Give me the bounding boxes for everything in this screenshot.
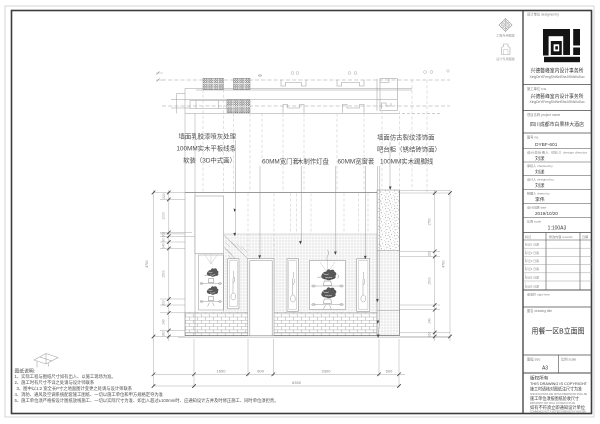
- svg-text:220: 220: [162, 193, 166, 199]
- svg-text:160: 160: [428, 332, 432, 338]
- svg-text:比例 scale: 比例 scale: [527, 218, 542, 223]
- svg-text:2019/10/20: 2019/10/20: [535, 211, 558, 216]
- svg-text:标记5 日期: 标记5 日期: [525, 274, 539, 279]
- svg-text:140: 140: [428, 318, 432, 324]
- svg-text:兴德藝峰室内设计事务所: 兴德藝峰室内设计事务所: [531, 66, 585, 74]
- svg-text:标记1 日期: 标记1 日期: [525, 242, 539, 247]
- svg-text:150: 150: [428, 251, 432, 257]
- svg-text:XingDeYiFengShiNeiSheJiShiWuSu: XingDeYiFengShiNeiSheJiShiWuSuo: [530, 100, 585, 104]
- svg-text:300: 300: [162, 232, 166, 238]
- svg-text:COMMENCE NOT A NOTED DIMENSION: COMMENCE NOT A NOTED DIMENSION F MASTER: [530, 410, 586, 413]
- svg-text:1750: 1750: [428, 218, 432, 226]
- svg-text:软装（3D中式画）: 软装（3D中式画）: [183, 156, 236, 165]
- svg-text:制图人 drawn by: 制图人 drawn by: [527, 190, 550, 195]
- svg-text:100MM实木平板线条: 100MM实木平板线条: [176, 144, 236, 153]
- svg-text:设计日期 date: 设计日期 date: [527, 204, 547, 209]
- svg-text:100MM实木踢脚线: 100MM实木踢脚线: [380, 157, 434, 166]
- svg-text:刘漾: 刘漾: [535, 168, 545, 175]
- svg-text:设计专用图章: 设计专用图章: [496, 56, 515, 61]
- svg-text:1650: 1650: [217, 368, 227, 373]
- svg-text:设计单位 designed by: 设计单位 designed by: [527, 12, 559, 17]
- svg-text:XingDeYiFengShiNeiSheJiShiWuSu: XingDeYiFengShiNeiSheJiShiWuSuo: [530, 75, 585, 79]
- svg-text:60MM宽门套: 60MM宽门套: [262, 157, 300, 166]
- svg-text:60: 60: [162, 238, 166, 242]
- svg-text:1500: 1500: [428, 277, 432, 285]
- svg-text:图号 no.: 图号 no.: [527, 134, 539, 139]
- svg-text:3、图中以1:2 宽全长P寸之地面图计变更之处请与设计师联系: 3、图中以1:2 宽全长P寸之地面图计变更之处请与设计师联系: [17, 385, 133, 392]
- svg-text:160: 160: [162, 331, 166, 337]
- svg-text:比例 scale: 比例 scale: [561, 356, 576, 361]
- svg-text:修改内容 records: 修改内容 records: [549, 234, 573, 239]
- svg-text:设计总负责人（四川）design director: 设计总负责人（四川）design director: [527, 149, 587, 154]
- svg-text:1000: 1000: [162, 212, 166, 220]
- svg-text:刘漾: 刘漾: [535, 155, 545, 162]
- svg-text:标记6 日期: 标记6 日期: [525, 284, 539, 289]
- svg-text:刘漾: 刘漾: [535, 182, 545, 189]
- svg-text:用餐一区B立面图: 用餐一区B立面图: [532, 326, 585, 335]
- svg-text:A3: A3: [542, 366, 548, 372]
- svg-text:图名 drawing title: 图名 drawing title: [527, 308, 552, 313]
- svg-text:DYBF-601: DYBF-601: [535, 142, 558, 148]
- svg-text:吧台柜（锈结砖饰面）: 吧台柜（锈结砖饰面）: [377, 145, 441, 154]
- svg-text:6350: 6350: [292, 380, 302, 385]
- svg-text:工程专用图章: 工程专用图章: [496, 32, 515, 37]
- svg-text:1500: 1500: [162, 270, 166, 278]
- svg-text:标记3 日期: 标记3 日期: [525, 258, 539, 263]
- svg-text:会签栏 sign here: 会签栏 sign here: [527, 291, 550, 296]
- svg-text:800: 800: [257, 368, 264, 373]
- svg-text:墙面乳胶漆喷灰处理: 墙面乳胶漆喷灰处理: [178, 132, 236, 141]
- svg-text:140: 140: [162, 243, 166, 249]
- svg-text:THIS DRAWING IS COPYRIGHT: THIS DRAWING IS COPYRIGHT: [530, 381, 588, 386]
- svg-text:图幅 size: 图幅 size: [527, 356, 541, 361]
- svg-text:标记: 标记: [525, 234, 531, 239]
- svg-text:设计人 designed by: 设计人 designed by: [527, 176, 554, 181]
- svg-text:300: 300: [162, 300, 166, 306]
- svg-text:3300: 3300: [322, 368, 332, 373]
- svg-text:标记4 日期: 标记4 日期: [525, 266, 539, 271]
- svg-text:600: 600: [386, 368, 393, 373]
- svg-text:5、施工单位须严格按设计图纸放线施工、一切以实际尺寸为准、如: 5、施工单位须严格按设计图纸放线施工、一切以实际尺寸为准、如出入超过±100mm…: [15, 397, 279, 404]
- svg-text:施工时请核对图纸注尺寸为准: 施工时请核对图纸注尺寸为准: [530, 386, 583, 393]
- svg-text:1:100A3: 1:100A3: [548, 226, 567, 232]
- svg-text:木制作灯盘: 木制作灯盘: [297, 157, 330, 166]
- svg-text:140: 140: [162, 319, 166, 325]
- svg-text:60MM宽窗套: 60MM宽窗套: [338, 157, 376, 166]
- svg-text:标记2 日期: 标记2 日期: [525, 250, 539, 255]
- svg-text:日期: 日期: [582, 234, 588, 239]
- svg-text:墙面仿古裂纹漆饰面: 墙面仿古裂纹漆饰面: [377, 133, 435, 142]
- svg-text:4760: 4760: [442, 260, 446, 268]
- svg-text:项目名称 project name: 项目名称 project name: [527, 112, 560, 117]
- svg-text:4、消防、通风及空调系统配套施工图纸、一切以施工单位和甲方规: 4、消防、通风及空调系统配套施工图纸、一切以施工单位和甲方规格定夺为准: [15, 391, 164, 398]
- svg-text:李伟: 李伟: [535, 196, 545, 203]
- svg-text:四川成都市白果林大酒店: 四川成都市白果林大酒店: [530, 120, 584, 128]
- svg-text:兴德藝峰室内设计事务所: 兴德藝峰室内设计事务所: [531, 92, 584, 100]
- svg-text:审核人 checked by: 审核人 checked by: [527, 163, 553, 168]
- svg-text:4760: 4760: [145, 260, 149, 268]
- svg-text:施工单位 s.w.: 施工单位 s.w.: [527, 86, 547, 91]
